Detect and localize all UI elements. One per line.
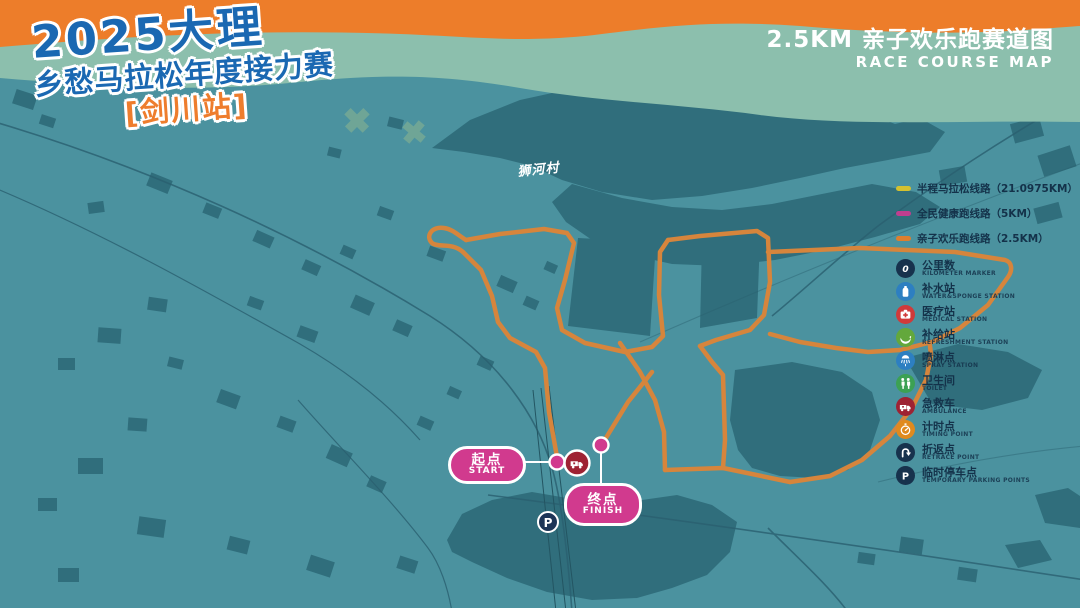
legend-icon-labels: 补水站WATER&SPONGE STATION xyxy=(922,283,1015,301)
event-title-block: 2025大理 乡愁马拉松年度接力赛 [剑川站] xyxy=(30,0,337,137)
legend-icon-label-en: TOILET xyxy=(922,386,955,392)
start-label-en: START xyxy=(469,467,506,476)
legend-icon-label-en: RETRACE POINT xyxy=(922,455,979,461)
parking-map-icon: P xyxy=(538,512,558,532)
legend-icon-item: 补给站REFRESHMENT STATION xyxy=(896,326,1080,349)
svg-text:P: P xyxy=(902,471,909,482)
legend-icon-item: 计时点TIMING POINT xyxy=(896,418,1080,441)
parking-icon: P xyxy=(896,466,915,485)
legend-icon-label-en: REFRESHMENT STATION xyxy=(922,340,1008,346)
finish-label-en: FINISH xyxy=(583,507,623,516)
legend-icon-label-en: WATER&SPONGE STATION xyxy=(922,294,1015,300)
legend-icon-label-en: MEDICAL STATION xyxy=(922,317,987,323)
legend-icon-item: 医疗站MEDICAL STATION xyxy=(896,303,1080,326)
legend-icon-label-en: TIMING POINT xyxy=(922,432,973,438)
route-color-swatch xyxy=(896,211,911,216)
legend-icon-item: 急救车AMBULANCE xyxy=(896,395,1080,418)
finish-label-pill: 终点 FINISH xyxy=(564,483,642,526)
legend-panel: 半程马拉松线路（21.0975KM）全民健康跑线路（5KM）亲子欢乐跑线路（2.… xyxy=(896,176,1080,487)
legend-icon-item: P临时停车点TEMPORARY PARKING POINTS xyxy=(896,464,1080,487)
route-label: 半程马拉松线路（21.0975KM） xyxy=(917,181,1078,196)
legend-icon-item: 0公里数KILOMETER MARKER xyxy=(896,257,1080,280)
svg-text:0: 0 xyxy=(902,265,908,275)
finish-label-cn: 终点 xyxy=(588,493,619,507)
legend-icon-labels: 喷淋点SPRAY STATION xyxy=(922,352,978,370)
legend-icon-labels: 折返点RETRACE POINT xyxy=(922,444,979,462)
route-label: 亲子欢乐跑线路（2.5KM） xyxy=(917,231,1049,246)
toilet-icon xyxy=(896,374,915,393)
legend-icon-labels: 急救车AMBULANCE xyxy=(922,398,967,416)
ambulance-icon xyxy=(896,397,915,416)
legend-route-item: 亲子欢乐跑线路（2.5KM） xyxy=(896,226,1080,251)
legend-icon-labels: 临时停车点TEMPORARY PARKING POINTS xyxy=(922,467,1030,485)
refreshment-station-icon xyxy=(896,328,915,347)
legend-icon-labels: 计时点TIMING POINT xyxy=(922,421,973,439)
icon-legend: 0公里数KILOMETER MARKER补水站WATER&SPONGE STAT… xyxy=(896,257,1080,487)
course-map-title-block: 2.5KM 亲子欢乐跑赛道图 RACE COURSE MAP xyxy=(767,27,1054,73)
retrace-point-icon xyxy=(896,443,915,462)
legend-icon-item: 补水站WATER&SPONGE STATION xyxy=(896,280,1080,303)
race-course-poster: 狮河村 P 2025大理 乡愁马拉松年 xyxy=(0,0,1080,608)
legend-icon-labels: 卫生间TOILET xyxy=(922,375,955,393)
legend-route-item: 半程马拉松线路（21.0975KM） xyxy=(896,176,1080,201)
kilometer-marker-icon: 0 xyxy=(896,259,915,278)
legend-icon-item: 折返点RETRACE POINT xyxy=(896,441,1080,464)
legend-icon-item: 喷淋点SPRAY STATION xyxy=(896,349,1080,372)
route-label: 全民健康跑线路（5KM） xyxy=(917,206,1037,221)
legend-icon-label-en: AMBULANCE xyxy=(922,409,967,415)
course-map-title-en: RACE COURSE MAP xyxy=(767,53,1054,73)
start-point-dot xyxy=(550,455,565,470)
route-legend: 半程马拉松线路（21.0975KM）全民健康跑线路（5KM）亲子欢乐跑线路（2.… xyxy=(896,176,1080,251)
finish-point-dot xyxy=(594,438,609,453)
legend-icon-labels: 补给站REFRESHMENT STATION xyxy=(922,329,1008,347)
ambulance-map-icon xyxy=(565,451,590,476)
water-station-icon xyxy=(896,282,915,301)
legend-route-item: 全民健康跑线路（5KM） xyxy=(896,201,1080,226)
svg-text:P: P xyxy=(544,516,553,530)
legend-icon-labels: 公里数KILOMETER MARKER xyxy=(922,260,996,278)
medical-station-icon xyxy=(896,305,915,324)
legend-icon-labels: 医疗站MEDICAL STATION xyxy=(922,306,987,324)
route-color-swatch xyxy=(896,186,911,191)
legend-icon-label-en: KILOMETER MARKER xyxy=(922,271,996,277)
course-map-title-cn: 2.5KM 亲子欢乐跑赛道图 xyxy=(767,27,1054,53)
spray-station-icon xyxy=(896,351,915,370)
legend-icon-item: 卫生间TOILET xyxy=(896,372,1080,395)
start-label-cn: 起点 xyxy=(472,453,503,467)
legend-icon-label-en: SPRAY STATION xyxy=(922,363,978,369)
route-color-swatch xyxy=(896,236,911,241)
legend-icon-label-en: TEMPORARY PARKING POINTS xyxy=(922,478,1030,484)
start-label-pill: 起点 START xyxy=(448,446,526,484)
timing-point-icon xyxy=(896,420,915,439)
